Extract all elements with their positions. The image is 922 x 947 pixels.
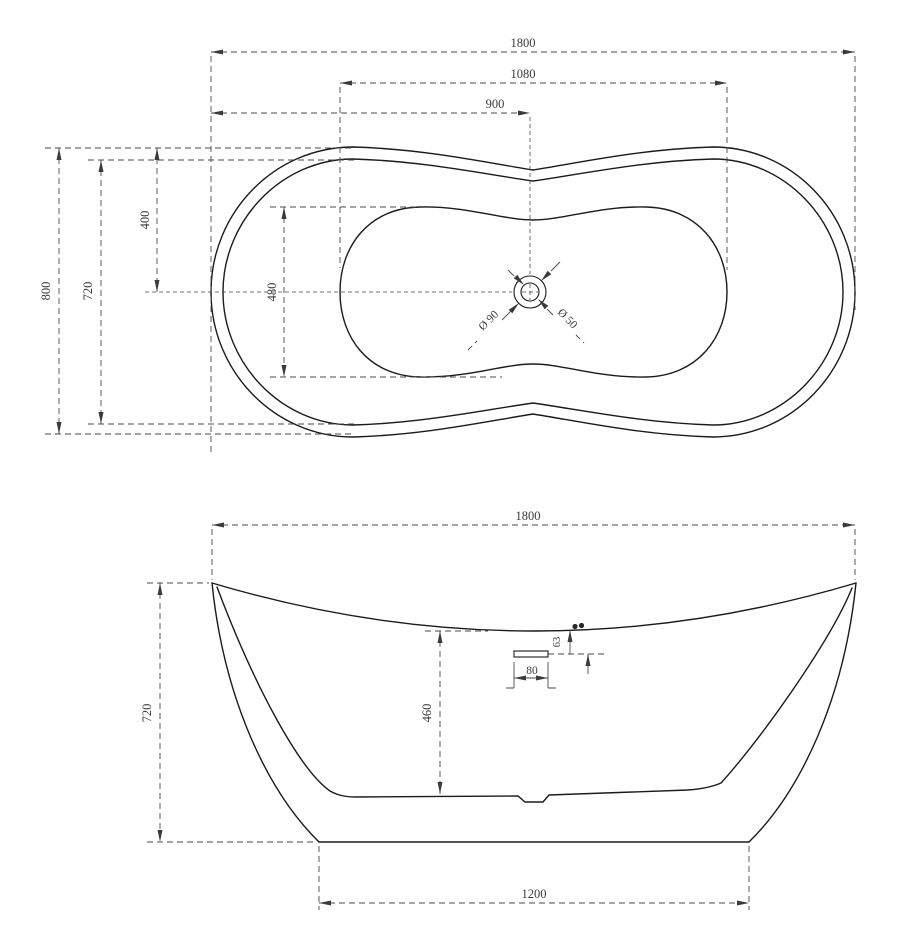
dim-label-overall-width: 800 (39, 282, 53, 301)
front-view-rim-curve (212, 583, 856, 631)
dim-label-base-length: 1200 (522, 887, 547, 901)
dim-label-drain-hole-diameter: Ø 50 (555, 307, 580, 332)
arrowheads-front-view (158, 523, 856, 906)
dim-label-overflow-width: 80 (526, 665, 538, 677)
dim-label-top-overall-length: 1800 (511, 36, 536, 50)
dim-label-rim-inner-width: 720 (81, 282, 95, 301)
front-view-inner-wall-and-floor (217, 587, 852, 802)
dim-label-overall-height: 720 (140, 704, 154, 723)
front-view-left-outer-wall (212, 583, 319, 842)
dim-label-drain-offset: 900 (486, 97, 505, 111)
arrowheads-top-view (57, 50, 856, 435)
drawing-canvas: 1800 1080 900 800 720 400 480 Ø 90 Ø 50 (0, 0, 922, 947)
dim-label-basin-width: 480 (265, 283, 279, 302)
dim-label-interior-depth: 460 (420, 704, 434, 723)
overflow-slot (514, 651, 548, 657)
front-view-right-outer-wall (749, 583, 856, 842)
dim-label-front-overall-length: 1800 (516, 509, 541, 523)
drain-crosshair (522, 284, 538, 300)
dim-label-centerline-from-top: 400 (138, 211, 152, 230)
bathtub-technical-drawing: 1800 1080 900 800 720 400 480 Ø 90 Ø 50 (0, 0, 922, 947)
drain-leaders (468, 262, 584, 350)
dim-label-drain-outer-diameter: Ø 90 (477, 308, 502, 333)
dim-label-basin-length: 1080 (511, 67, 536, 81)
extension-lines-front-view (147, 529, 855, 910)
top-view: 1800 1080 900 800 720 400 480 Ø 90 Ø 50 (39, 36, 855, 456)
dim-label-overflow-drop: 63 (552, 637, 563, 648)
extension-lines-top-view (45, 56, 855, 456)
front-view: 1800 720 460 63 80 1200 (140, 509, 856, 910)
